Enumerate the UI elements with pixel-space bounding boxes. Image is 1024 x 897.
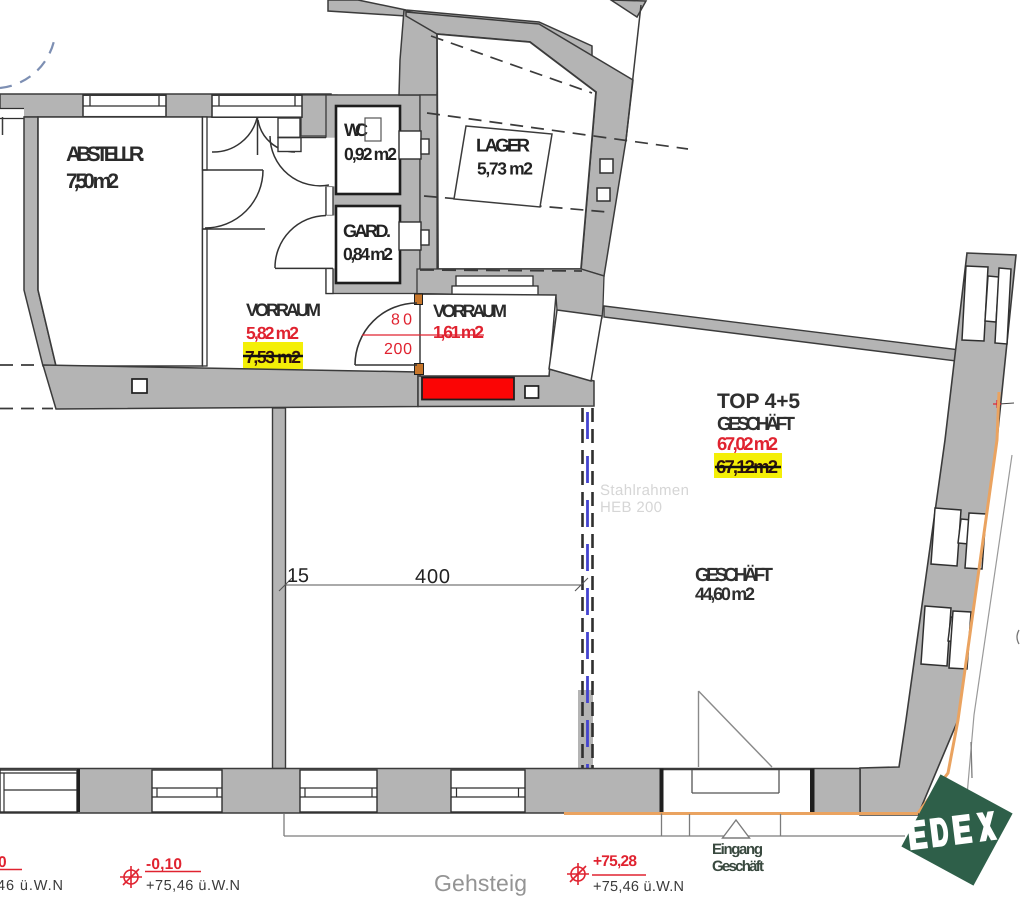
svg-text:GESCHÄFT: GESCHÄFT <box>717 413 795 435</box>
svg-text:5,82 m2: 5,82 m2 <box>246 323 299 343</box>
svg-text:Stahlrahmen: Stahlrahmen <box>600 482 689 499</box>
svg-text:TOP 4+5: TOP 4+5 <box>717 390 800 413</box>
svg-text:Eingang: Eingang <box>712 841 763 858</box>
svg-text:0: 0 <box>0 854 7 871</box>
svg-text:0,84 m2: 0,84 m2 <box>343 244 393 264</box>
svg-text:200: 200 <box>384 341 412 358</box>
svg-text:ABSTELLR.: ABSTELLR. <box>66 143 145 166</box>
svg-text:400: 400 <box>415 566 450 588</box>
svg-text:VORRAUM: VORRAUM <box>246 300 321 320</box>
svg-text:44,60 m2: 44,60 m2 <box>695 584 755 604</box>
svg-text:46 ü.W.N: 46 ü.W.N <box>0 878 63 894</box>
svg-text:+75,46 ü.W.N: +75,46 ü.W.N <box>146 878 240 894</box>
svg-text:HEB 200: HEB 200 <box>600 499 662 516</box>
svg-text:+75,46 ü.W.N: +75,46 ü.W.N <box>593 879 684 895</box>
svg-text:+75,28: +75,28 <box>593 853 637 870</box>
svg-text:15: 15 <box>287 565 309 587</box>
svg-text:GESCHÄFT: GESCHÄFT <box>695 564 773 586</box>
svg-text:5,73 m2: 5,73 m2 <box>477 159 533 179</box>
svg-text:7,50 m2: 7,50 m2 <box>66 170 119 193</box>
svg-text:LAGER: LAGER <box>476 135 530 156</box>
svg-text:VORRAUM: VORRAUM <box>433 301 507 321</box>
svg-text:GARD.: GARD. <box>343 221 391 241</box>
svg-text:-0,10: -0,10 <box>146 856 182 873</box>
svg-text:Geschäft: Geschäft <box>712 858 764 875</box>
svg-text:WC: WC <box>344 120 368 140</box>
svg-text:0,92 m2: 0,92 m2 <box>344 144 397 164</box>
svg-text:Gehsteig: Gehsteig <box>434 870 527 896</box>
svg-text:1,61 m2: 1,61 m2 <box>433 322 484 342</box>
svg-text:67,02 m2: 67,02 m2 <box>717 433 778 454</box>
